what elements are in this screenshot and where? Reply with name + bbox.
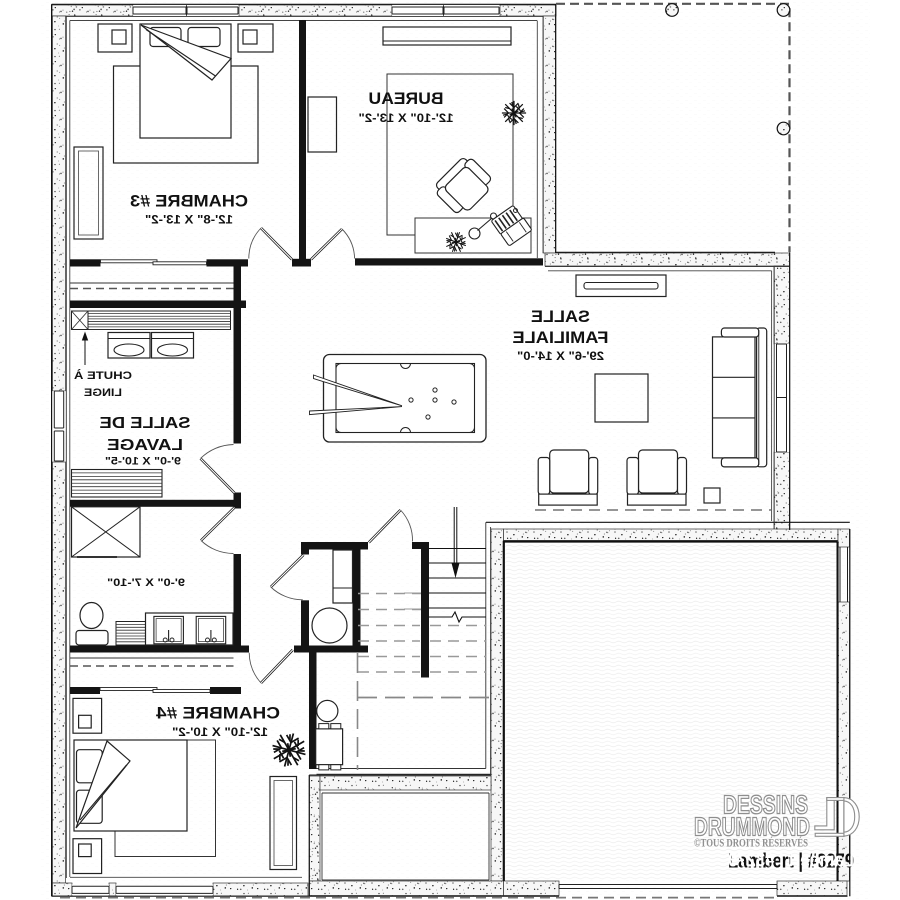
svg-text:CHAMBRE #3: CHAMBRE #3 [130, 192, 248, 211]
svg-text:9'-0" X 10'-5": 9'-0" X 10'-5" [105, 456, 181, 468]
svg-text:29'-6" X 14'-0": 29'-6" X 14'-0" [517, 351, 604, 363]
svg-text:12'-10" X 10'-2": 12'-10" X 10'-2" [172, 727, 268, 739]
svg-text:CHAMBRE #4: CHAMBRE #4 [155, 704, 280, 723]
svg-text:CHUTE À: CHUTE À [74, 369, 132, 382]
svg-text:LAVAGE: LAVAGE [107, 437, 183, 454]
svg-text:12'-10" X 13'-2": 12'-10" X 13'-2" [359, 113, 454, 125]
svg-text:Lambert | #3279: Lambert | #3279 [728, 849, 854, 872]
svg-text:12'-8" X 13'-2": 12'-8" X 13'-2" [145, 215, 233, 227]
svg-text:©TOUS DROITS RÉSERVÉS: ©TOUS DROITS RÉSERVÉS [694, 836, 808, 850]
svg-text:FAMILIALE: FAMILIALE [513, 328, 609, 347]
svg-text:9'-0" X 7'-10": 9'-0" X 7'-10" [107, 577, 185, 589]
svg-text:SALLE: SALLE [531, 307, 590, 326]
svg-text:BUREAU: BUREAU [369, 89, 444, 108]
svg-text:SALLE DE: SALLE DE [99, 415, 190, 432]
svg-text:LINGE: LINGE [84, 387, 122, 399]
